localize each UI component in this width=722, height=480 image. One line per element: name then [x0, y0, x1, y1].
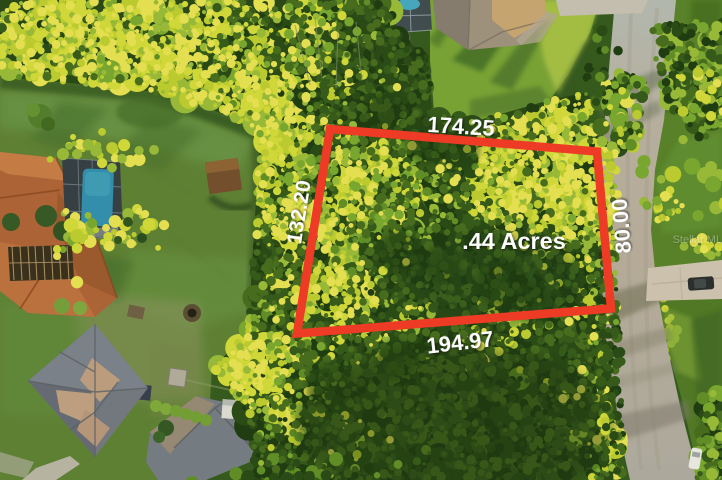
- svg-text:80.00: 80.00: [607, 198, 637, 255]
- svg-text:174.25: 174.25: [427, 112, 496, 141]
- svg-text:Stellar MLS: Stellar MLS: [673, 234, 722, 246]
- svg-text:.44 Acres: .44 Acres: [462, 228, 566, 254]
